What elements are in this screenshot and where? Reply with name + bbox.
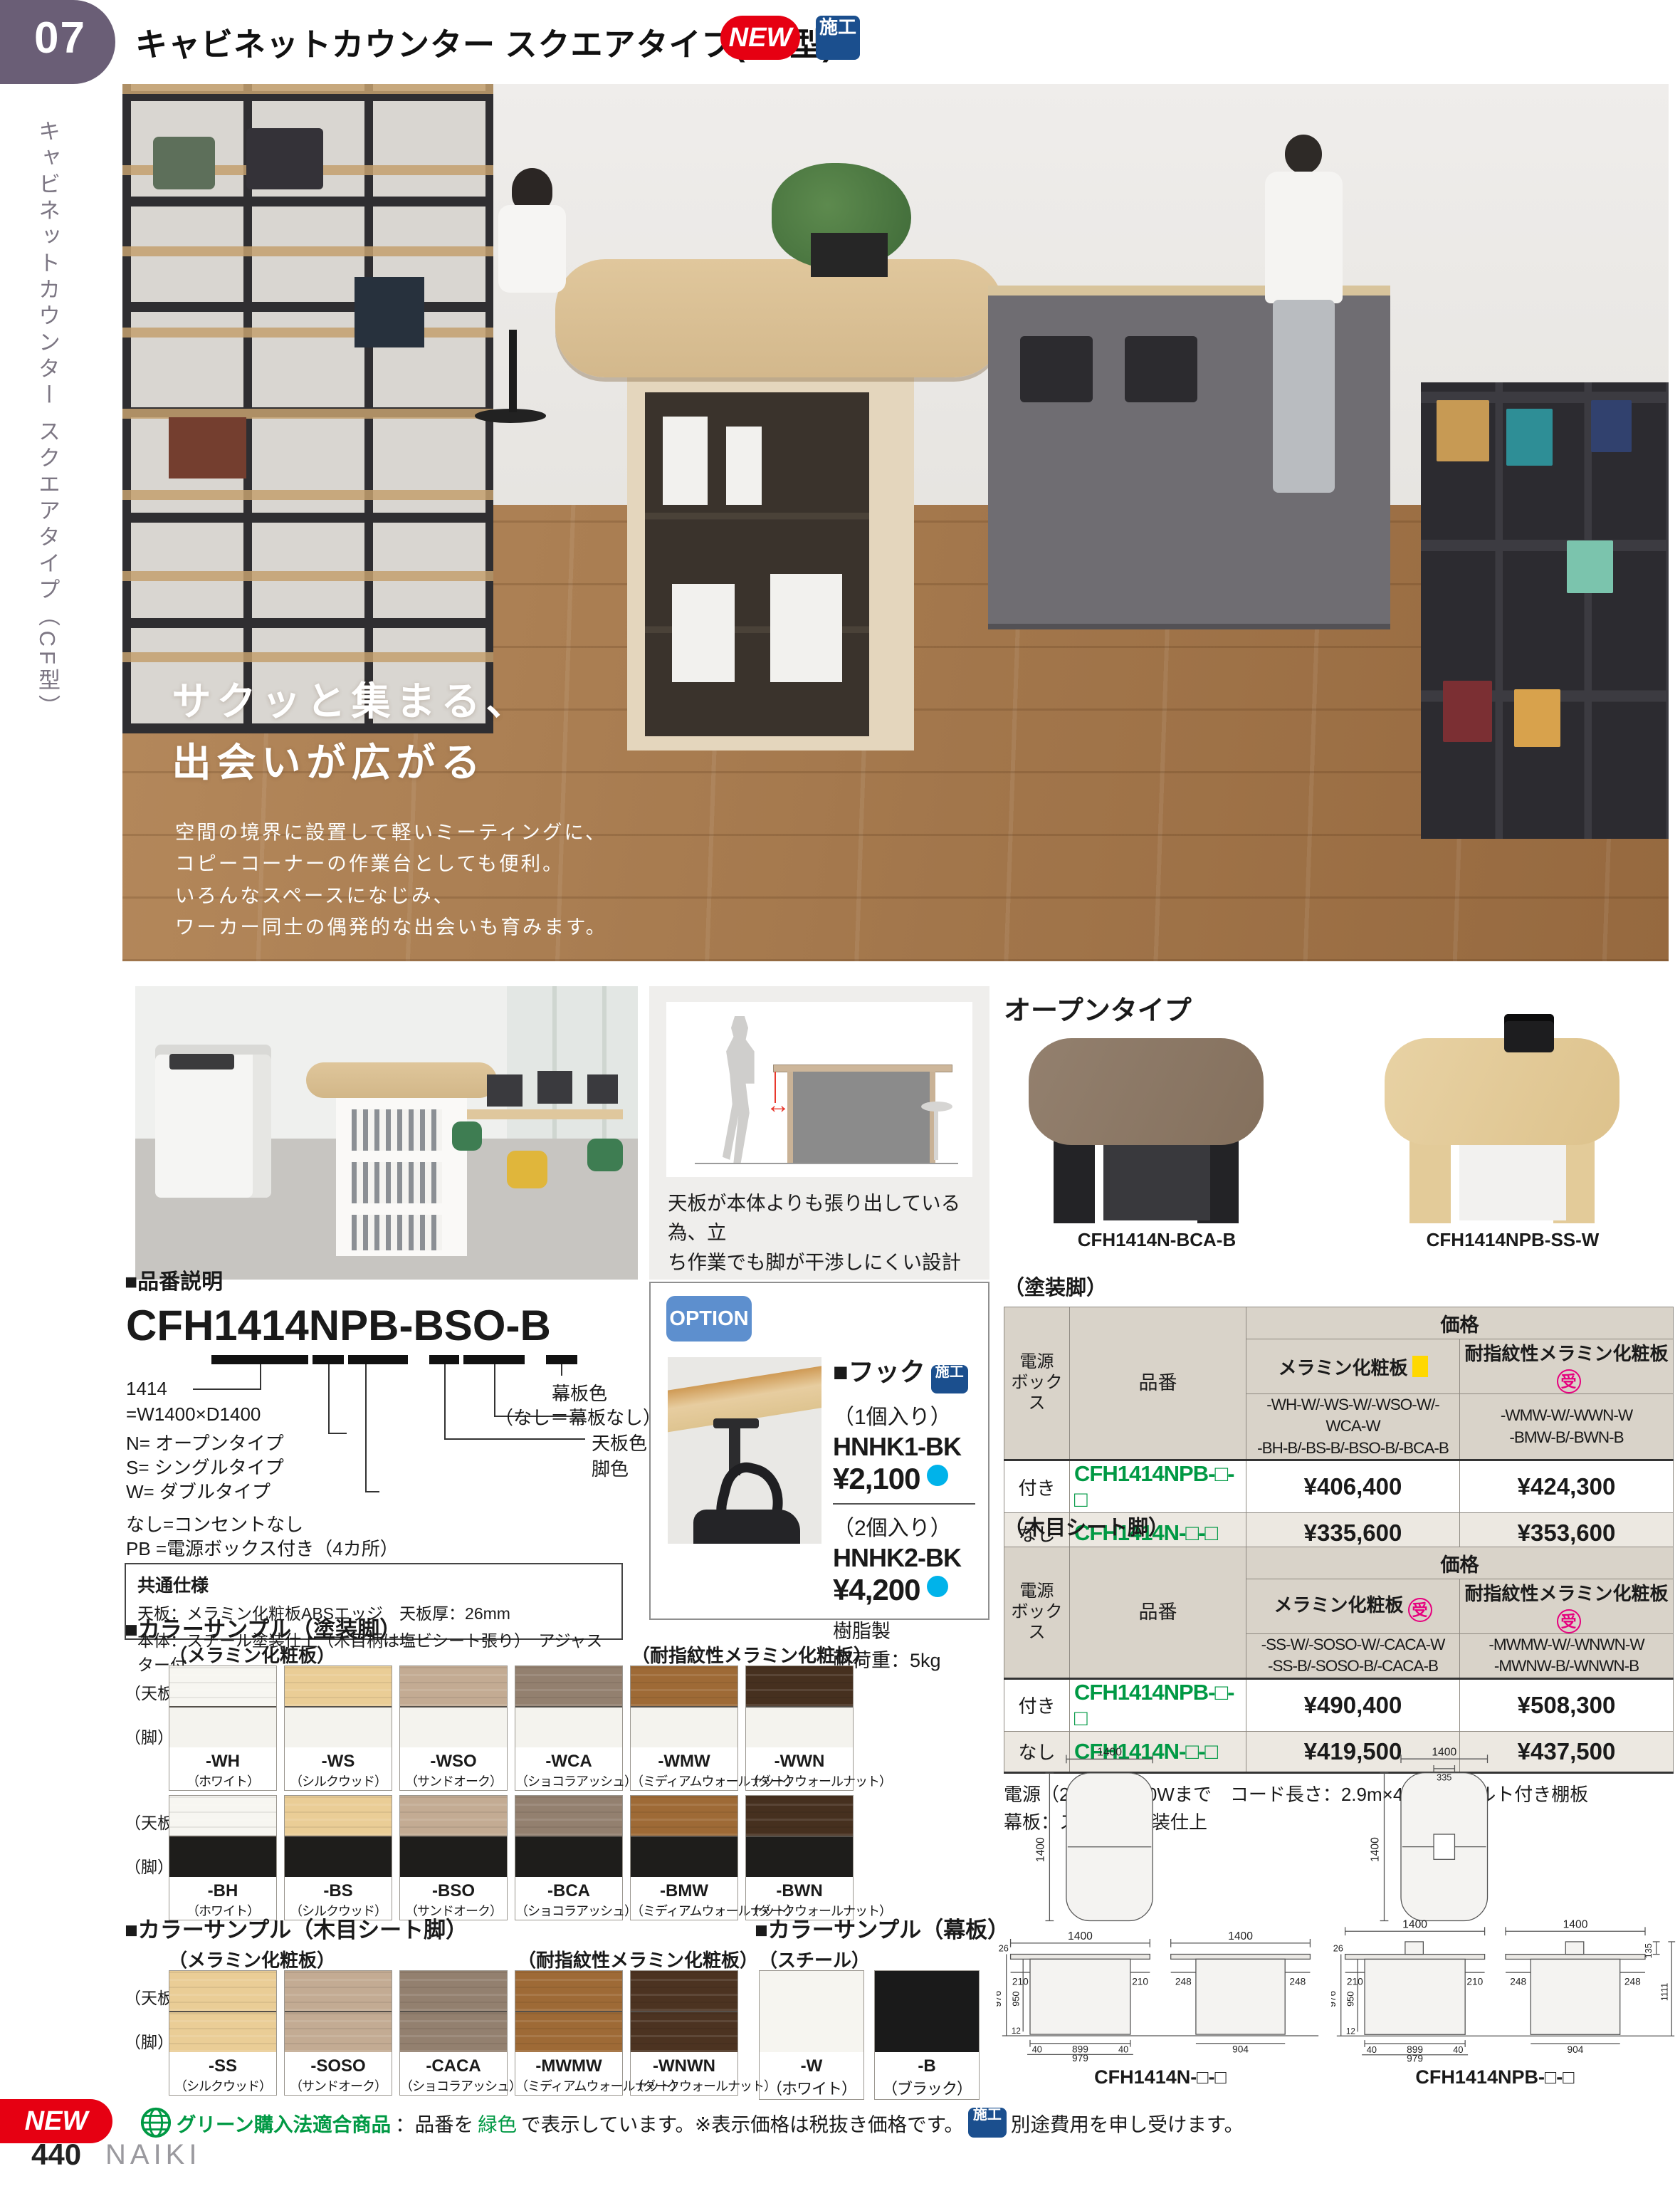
top-color xyxy=(169,1666,276,1706)
uke-mark-icon: 受 xyxy=(1557,1609,1581,1633)
leg-color xyxy=(746,1706,853,1747)
dim-label: 210 xyxy=(1347,1977,1363,1987)
dim-label: 40 xyxy=(1032,2044,1042,2054)
dim-label: 40 xyxy=(1453,2044,1463,2055)
green-chair xyxy=(587,1139,622,1171)
color-swatch: -SS（シルクウッド） xyxy=(169,1970,277,2096)
office-scene-photo xyxy=(135,986,638,1280)
legend-single: S= シングルタイプ xyxy=(126,1453,284,1480)
swatch-row-makuita: -W（ホワイト） -B（ブラック） xyxy=(759,1970,980,2100)
dim-label: 1400 xyxy=(1563,1918,1588,1930)
group-label: （スチール） xyxy=(759,1946,870,1972)
dim-label: 1400 xyxy=(1097,1747,1122,1759)
page-number: 440 xyxy=(31,2138,81,2172)
dimension-svg-n: 1400 1400 1400 26 210 210 976 950 12 40 … xyxy=(997,1745,1324,2065)
price-cell: ¥508,300 xyxy=(1460,1678,1674,1731)
dim-label: 248 xyxy=(1289,1977,1306,1987)
leg-color xyxy=(400,1706,507,1747)
dim-label: 1400 xyxy=(1432,1746,1456,1758)
overhang-feature-box: ↔ 天板が本体よりも張り出している為、立 ち作業でも脚が干渉しにくい設計となっ … xyxy=(649,986,989,1280)
product-code: CFH1414N-BCA-B xyxy=(1004,1229,1310,1251)
connector-line xyxy=(193,1364,261,1390)
dim-label: 248 xyxy=(1624,1977,1641,1987)
swatch-code: -CACA xyxy=(400,2056,507,2076)
color-swatch: -WNWN（ダークウォールナット） xyxy=(630,1970,738,2096)
brand-name: NAIKI xyxy=(105,2139,201,2171)
table-label: （塗装脚） xyxy=(1004,1271,1673,1301)
table-row: 付き CFH1414NPB-□-□ ¥490,400 ¥508,300 xyxy=(1004,1678,1674,1731)
col-header-code: 品番 xyxy=(1070,1547,1246,1679)
catalog-page: 07 キャビネットカウンター スクエアタイプ(CF型) NEW 施工 キャビネッ… xyxy=(0,0,1680,2186)
row-label-leg: （脚） xyxy=(125,2029,174,2053)
binder xyxy=(663,417,708,505)
page-number-tab: 07 xyxy=(0,0,115,84)
copier xyxy=(155,1045,271,1197)
spec-title: 共通仕様 xyxy=(137,1571,610,1597)
dim-label: 12 xyxy=(1346,2027,1355,2036)
plant-decor xyxy=(153,137,215,189)
section-heading: ■カラーサンプル（木目シート脚） xyxy=(125,1912,751,1944)
binder-row xyxy=(352,1109,442,1151)
plant-box xyxy=(811,233,888,277)
price-dot-icon xyxy=(927,1576,948,1597)
desk xyxy=(467,1109,623,1119)
hook-price1: ¥2,100 xyxy=(833,1462,981,1496)
hinban-heading: ■品番説明 xyxy=(125,1264,644,1295)
hero-desc-line: いろんなスペースになじみ、 xyxy=(175,880,607,912)
swatch-code: -WMW xyxy=(631,1752,737,1772)
leg-color xyxy=(746,1836,853,1877)
counter-top xyxy=(306,1062,497,1097)
footer-note: グリーン購入法適合商品：品番を緑色で表示しています。※表示価格は税抜き価格です。… xyxy=(140,2105,1244,2140)
yellow-chair xyxy=(507,1151,547,1189)
legend-maku-none: （なし＝幕板なし） xyxy=(495,1403,661,1430)
steel-color xyxy=(875,1971,979,2052)
color-samples-makuita: ■カラーサンプル（幕板） （スチール） -W（ホワイト） -B（ブラック） xyxy=(755,1912,1004,2097)
section-heading: ■カラーサンプル（幕板） xyxy=(755,1912,1004,1944)
walking-person-silhouette xyxy=(709,1016,770,1163)
swatch-name: （ホワイト） xyxy=(169,1772,276,1790)
leg-color xyxy=(169,1836,276,1877)
dim-label: 1400 xyxy=(1035,1837,1047,1862)
color-swatch: -WSO（サンドオーク） xyxy=(399,1665,508,1791)
dim-label: 976 xyxy=(997,1990,1003,2007)
code-cell: CFH1414NPB-□-□ xyxy=(1070,1678,1246,1731)
seko-badge: 施工 xyxy=(931,1365,968,1393)
leg-color xyxy=(515,2011,622,2052)
color-swatch: -MWMW（ミディアムウォールナット） xyxy=(515,1970,623,2096)
speaker-decor xyxy=(246,128,324,189)
dim-label: 210 xyxy=(1012,1977,1029,1987)
swatch-name: （サンドオーク） xyxy=(400,1772,507,1790)
book-spines xyxy=(1437,400,1489,461)
monitor xyxy=(537,1071,572,1103)
col-header-price: 価格 xyxy=(1246,1547,1674,1579)
leg-color xyxy=(285,1706,392,1747)
tagline-line2: 出会いが広がる xyxy=(172,733,531,793)
legend-double: W= ダブルタイプ xyxy=(126,1478,271,1504)
yellow-mark-icon xyxy=(1412,1356,1428,1377)
code-cell: CFH1414NPB-□-□ xyxy=(1070,1460,1246,1513)
top-color xyxy=(515,1796,622,1836)
drawing-n: 1400 1400 1400 26 210 210 976 950 12 40 … xyxy=(997,1745,1324,2101)
top-color xyxy=(400,1666,507,1706)
power-cell: 付き xyxy=(1004,1678,1070,1731)
color-swatch: -WH（ホワイト） xyxy=(169,1665,277,1791)
leg-color xyxy=(631,1706,737,1747)
price-table-sheet: 電源ボックス 品番 価格 メラミン化粧板受 耐指紋性メラミン化粧板受 -SS-W… xyxy=(1004,1547,1674,1774)
color-samples-paint: ■カラーサンプル（塗装脚） （メラミン化粧板） （耐指紋性メラミン化粧板） （天… xyxy=(125,1611,1007,1910)
dim-label: 904 xyxy=(1232,2044,1249,2054)
sidebar-vertical-title: キャビネットカウンター スクエアタイプ（CF型） xyxy=(31,120,63,721)
hook-qty1: （1個入り） xyxy=(833,1399,981,1431)
book-spines xyxy=(1514,689,1560,747)
product-code: CFH1414NPB-SS-W xyxy=(1360,1229,1666,1251)
woman-top xyxy=(498,205,567,293)
leg-color xyxy=(631,1836,737,1877)
swatch-name: （シルクウッド） xyxy=(285,1772,392,1790)
hook-qty2: （2個入り） xyxy=(833,1510,981,1542)
green-law-label: グリーン購入法適合商品 xyxy=(177,2108,391,2137)
swatch-code: -WSO xyxy=(400,1752,507,1772)
footer-text: ：品番を xyxy=(395,2108,473,2137)
col-header-power: 電源ボックス xyxy=(1004,1547,1070,1679)
swatch-code: -WNWN xyxy=(631,2056,737,2076)
dim-label: 335 xyxy=(1437,1772,1451,1783)
hook-price2: ¥4,200 xyxy=(833,1573,981,1607)
leg-color xyxy=(515,1706,622,1747)
open-type-heading: オープンタイプ xyxy=(1004,988,1673,1027)
dim-label: 135 xyxy=(1643,1943,1654,1958)
seko-badge-label: 施工 xyxy=(973,2107,1002,2123)
legend-leg-color: 脚色 xyxy=(592,1455,629,1481)
dim-label: 1400 xyxy=(1068,1930,1093,1942)
code-underbar xyxy=(546,1355,577,1364)
book-spines xyxy=(1591,400,1631,453)
legend-1414: 1414 xyxy=(126,1378,167,1400)
row-label-leg: （脚） xyxy=(125,1724,174,1748)
color-codes-2: -MWMW-W/-WNWN-W-MWNW-B/-WNWN-B xyxy=(1460,1634,1674,1679)
color-swatch: -WWN（ダークウォールナット） xyxy=(745,1665,854,1791)
color-samples-sheet: ■カラーサンプル（木目シート脚） （メラミン化粧板） （耐指紋性メラミン化粧板）… xyxy=(125,1912,751,2097)
row-label-leg: （脚） xyxy=(125,1853,174,1878)
leg-color xyxy=(515,1836,622,1877)
color-swatch: -BS（シルクウッド） xyxy=(284,1795,392,1920)
legend-size: =W1400×D1400 xyxy=(126,1403,261,1426)
dim-label: 904 xyxy=(1568,2044,1584,2055)
hook-title: ■フック xyxy=(833,1357,925,1386)
man-shirt xyxy=(1265,172,1343,303)
drawing-code: CFH1414N-□-□ xyxy=(997,2066,1324,2088)
color-swatch: -SOSO（サンドオーク） xyxy=(284,1970,392,2096)
color-swatch: -WS（シルクウッド） xyxy=(284,1665,392,1791)
top-color xyxy=(515,1971,622,2011)
binder xyxy=(726,427,762,505)
hero-desc-line: ワーカー同士の偶発的な出会いも育みます。 xyxy=(175,911,607,943)
color-swatch: -BMW（ミディアムウォールナット） xyxy=(630,1795,738,1920)
double-arrow-icon: ↔ xyxy=(766,1092,790,1119)
leg-color xyxy=(400,2011,507,2052)
hook-price1-value: ¥2,100 xyxy=(833,1462,920,1495)
dim-label: 40 xyxy=(1367,2044,1377,2055)
hero-tagline: サクッと集まる、 出会いが広がる xyxy=(172,671,531,793)
swatch-name: （ホワイト） xyxy=(760,2076,863,2099)
storage-box xyxy=(770,574,842,682)
page-tab-number: 07 xyxy=(34,13,86,63)
color-swatch: -BH（ホワイト） xyxy=(169,1795,277,1920)
dim-label: 26 xyxy=(1333,1943,1343,1954)
swatch-code: -SS xyxy=(169,2056,276,2076)
swatch-code: -BWN xyxy=(746,1881,853,1901)
drawing-code: CFH1414NPB-□-□ xyxy=(1331,2066,1659,2088)
swatch-row-black-legs: -BH（ホワイト） -BS（シルクウッド） -BSO（サンドオーク） -BCA（… xyxy=(169,1795,854,1920)
legend-no-outlet: なし=コンセントなし xyxy=(126,1510,303,1537)
color-codes-1: -WH-W/-WS-W/-WSO-W/-WCA-W-BH-B/-BS-B/-BS… xyxy=(1246,1394,1460,1460)
price-dot-icon xyxy=(927,1465,948,1486)
top-color xyxy=(631,1666,737,1706)
legend-powerbox: PB =電源ボックス付き（4カ所） xyxy=(126,1534,399,1561)
swatch-code: -BCA xyxy=(515,1881,622,1901)
dim-label: 248 xyxy=(1175,1977,1192,1987)
seko-badge-label: 施工 xyxy=(816,16,860,38)
price-cell: ¥406,400 xyxy=(1246,1460,1460,1513)
swatch-code: -SOSO xyxy=(285,2056,392,2076)
color-swatch: -WMW（ミディアムウォールナット） xyxy=(630,1665,738,1791)
dim-label: 950 xyxy=(1010,1992,1021,2007)
dimension-drawings: 1400 1400 1400 26 210 210 976 950 12 40 … xyxy=(997,1745,1680,2115)
table-top xyxy=(1029,1038,1264,1145)
swatch-code: -MWMW xyxy=(515,2056,622,2076)
dim-label: 210 xyxy=(1132,1977,1148,1987)
dim-label: 26 xyxy=(999,1943,1009,1954)
stool-pole-silhouette xyxy=(934,1110,938,1160)
tagline-line1: サクッと集まる、 xyxy=(172,671,531,732)
legend-open: N= オープンタイプ xyxy=(126,1429,284,1455)
price-cell: ¥424,300 xyxy=(1460,1460,1674,1513)
power-box xyxy=(1504,1014,1554,1052)
top-color xyxy=(285,1796,392,1836)
dim-label: 979 xyxy=(1407,2054,1423,2064)
swatch-code: -BSO xyxy=(400,1881,507,1901)
connector-line xyxy=(561,1364,562,1376)
cabinet-slot xyxy=(1125,336,1197,403)
hinban-code: CFH1414NPB-BSO-B xyxy=(126,1301,551,1350)
top-color xyxy=(746,1666,853,1706)
ground-line xyxy=(695,1163,958,1164)
footer-green-word: 緑色 xyxy=(478,2108,517,2137)
top-color xyxy=(285,1666,392,1706)
man-pants xyxy=(1273,300,1335,493)
hero-desc-line: 空間の境界に設置して軽いミーティングに、 xyxy=(175,817,607,849)
top-color xyxy=(169,1971,276,2011)
swatch-name: （ミディアムウォールナット） xyxy=(631,1772,737,1790)
steel-color xyxy=(760,1971,863,2052)
table-top xyxy=(1385,1038,1619,1145)
hero-photo: サクッと集まる、 出会いが広がる 空間の境界に設置して軽いミーティングに、 コピ… xyxy=(122,84,1669,961)
legend-maku-color: 幕板色 xyxy=(552,1379,607,1406)
top-color xyxy=(631,1796,737,1836)
col-header-price: 価格 xyxy=(1246,1307,1674,1339)
hook-code1: HNHK1-BK xyxy=(833,1432,981,1462)
books-decor xyxy=(355,277,424,347)
stool-pole xyxy=(509,330,517,412)
footer-text: で表示しています。※表示価格は税抜き価格です。 xyxy=(521,2108,964,2137)
leg-color xyxy=(631,2011,737,2052)
monitor xyxy=(487,1074,522,1107)
swatch-row-white-legs: -WH（ホワイト） -WS（シルクウッド） -WSO（サンドオーク） -WCA（… xyxy=(169,1665,854,1791)
part-number-section: ■品番説明 CFH1414NPB-BSO-B 1414 =W1400×D1400… xyxy=(125,1264,644,1620)
swatch-name: （ミディアムウォールナット） xyxy=(515,2076,622,2095)
color-swatch: -WCA（ショコラアッシュ） xyxy=(515,1665,623,1791)
open-type-section: オープンタイプ CFH1414N-BCA-B CFH1414NPB-SS-W xyxy=(1004,988,1673,1273)
top-color xyxy=(631,1971,737,2011)
drawing-npb: 1400 335 1400 1400 26 210 210 976 950 12… xyxy=(1331,1745,1680,2101)
seko-badge: 施工 xyxy=(968,2108,1007,2138)
top-color xyxy=(285,1971,392,2011)
dim-label: 248 xyxy=(1510,1977,1526,1987)
hook-photo xyxy=(668,1357,821,1544)
diagram-panel: ↔ xyxy=(666,1002,972,1177)
price-cell: ¥490,400 xyxy=(1246,1678,1460,1731)
swatch-code: -WS xyxy=(285,1752,392,1772)
code-underbar xyxy=(348,1355,408,1364)
binder-row xyxy=(352,1162,442,1203)
uke-mark-icon: 受 xyxy=(1408,1598,1432,1622)
leg-color xyxy=(169,1706,276,1747)
group-label: （メラミン化粧板） xyxy=(169,1946,335,1972)
leg-color xyxy=(169,2011,276,2052)
box-decor xyxy=(169,417,246,478)
color-swatch: -B（ブラック） xyxy=(874,1970,980,2100)
dim-label: 1111 xyxy=(1659,1983,1669,2002)
hook-price2-value: ¥4,200 xyxy=(833,1573,920,1606)
table-label: （木目シート脚） xyxy=(1004,1511,1673,1541)
hanging-bag xyxy=(693,1510,800,1544)
swatch-code: -WH xyxy=(169,1752,276,1772)
group-label: （耐指紋性メラミン化粧板） xyxy=(631,1641,872,1668)
swatch-name: （サンドオーク） xyxy=(285,2076,392,2095)
swatch-name: （ダークウォールナット） xyxy=(746,1772,853,1790)
color-codes-2: -WMW-W/-WWN-W-BMW-B/-BWN-B xyxy=(1460,1394,1674,1460)
swatch-code: -BMW xyxy=(631,1881,737,1901)
dim-label: 40 xyxy=(1118,2044,1128,2054)
hero-desc-line: コピーコーナーの作業台としても便利。 xyxy=(175,848,607,880)
dim-label: 950 xyxy=(1345,1992,1355,2007)
dim-label: 979 xyxy=(1072,2053,1088,2064)
divider xyxy=(833,1503,975,1505)
dim-label: 976 xyxy=(1331,1990,1338,2007)
option-badge: OPTION xyxy=(666,1296,752,1342)
swatch-name: （ショコラアッシュ） xyxy=(400,2076,507,2095)
swatch-code: -BH xyxy=(169,1881,276,1901)
book-spines xyxy=(1567,540,1613,593)
table-row: 付き CFH1414NPB-□-□ ¥406,400 ¥424,300 xyxy=(1004,1460,1674,1513)
leg-color xyxy=(285,1836,392,1877)
counter-tabletop xyxy=(555,259,1004,377)
top-color xyxy=(746,1796,853,1836)
code-underbar xyxy=(313,1355,344,1364)
swatch-code: -B xyxy=(875,2056,979,2076)
color-swatch: -BCA（ショコラアッシュ） xyxy=(515,1795,623,1920)
top-color xyxy=(400,1796,507,1836)
binder-row xyxy=(352,1215,442,1250)
col-header-code: 品番 xyxy=(1070,1307,1246,1460)
swatch-row-sheet: -SS（シルクウッド） -SOSO（サンドオーク） -CACA（ショコラアッシュ… xyxy=(169,1970,738,2096)
color-swatch: -W（ホワイト） xyxy=(759,1970,864,2100)
new-badge: NEW xyxy=(720,16,800,60)
color-swatch: -BSO（サンドオーク） xyxy=(399,1795,508,1920)
top-color xyxy=(169,1796,276,1836)
top-color xyxy=(400,1971,507,2011)
product-dark: CFH1414N-BCA-B xyxy=(1004,1038,1310,1223)
dim-label: 1400 xyxy=(1370,1837,1382,1862)
option-box: OPTION ■フック施工 （1個入り） HNHK1-BK ¥2,100 （2個… xyxy=(649,1282,989,1620)
swatch-code: -WCA xyxy=(515,1752,622,1772)
swatch-name: （シルクウッド） xyxy=(169,2076,276,2095)
col-header-power: 電源ボックス xyxy=(1004,1307,1070,1460)
book-spines xyxy=(1506,409,1553,466)
section-heading: ■カラーサンプル（塗装脚） xyxy=(125,1611,1007,1643)
group-label: （耐指紋性メラミン化粧板） xyxy=(518,1946,751,1972)
dimension-svg-npb: 1400 335 1400 1400 26 210 210 976 950 12… xyxy=(1331,1745,1680,2065)
legend-top-color: 天板色 xyxy=(592,1429,647,1455)
group-label: （メラミン化粧板） xyxy=(169,1641,335,1668)
hook-code2: HNHK2-BK xyxy=(833,1543,981,1573)
table-body-side-view xyxy=(787,1072,935,1163)
leg-color xyxy=(285,2011,392,2052)
window xyxy=(507,986,638,1162)
swatch-code: -BS xyxy=(285,1881,392,1901)
code-underbar xyxy=(211,1355,308,1364)
dim-label: 1400 xyxy=(1402,1918,1427,1930)
swatch-code: -W xyxy=(760,2056,863,2076)
swatch-name: （ダークウォールナット） xyxy=(631,2076,737,2095)
green-chair xyxy=(452,1121,482,1151)
code-underbar xyxy=(429,1355,459,1364)
hero-description: 空間の境界に設置して軽いミーティングに、 コピーコーナーの作業台としても便利。 … xyxy=(175,817,607,943)
color-swatch: -BWN（ダークウォールナット） xyxy=(745,1795,854,1920)
swatch-name: （ブラック） xyxy=(875,2076,979,2099)
material-anti-fingerprint: 耐指紋性メラミン化粧板受 xyxy=(1460,1579,1674,1634)
storage-box xyxy=(672,584,735,682)
footer-new-badge: NEW xyxy=(0,2099,112,2143)
man-head xyxy=(1285,135,1322,173)
code-underbar xyxy=(463,1355,525,1364)
feature-caption-line: 天板が本体よりも張り出している為、立 xyxy=(668,1188,974,1248)
material-anti-fingerprint: 耐指紋性メラミン化粧板受 xyxy=(1460,1339,1674,1394)
swatch-name: （ショコラアッシュ） xyxy=(515,1772,622,1790)
hero-cabinet-counter xyxy=(555,259,1004,751)
power-cell: 付き xyxy=(1004,1460,1070,1513)
book-spines xyxy=(1443,681,1493,742)
seko-badge: 施工 xyxy=(816,16,860,60)
dim-label: 12 xyxy=(1012,2027,1021,2036)
swatch-code: -WWN xyxy=(746,1752,853,1772)
uke-mark-icon: 受 xyxy=(1557,1369,1581,1393)
dim-label: 1400 xyxy=(1228,1930,1253,1942)
monitor xyxy=(587,1074,617,1104)
copier-panel xyxy=(169,1054,234,1069)
leg-color xyxy=(400,1836,507,1877)
color-swatch: -CACA（ショコラアッシュ） xyxy=(399,1970,508,2096)
dim-label: 210 xyxy=(1466,1977,1483,1987)
material-melamine: メラミン化粧板 xyxy=(1246,1339,1460,1394)
green-globe-icon xyxy=(140,2106,172,2139)
product-light: CFH1414NPB-SS-W xyxy=(1360,1038,1666,1223)
footer-text: 別途費用を申し受けます。 xyxy=(1011,2108,1244,2137)
top-color xyxy=(515,1666,622,1706)
connector-line xyxy=(328,1364,347,1434)
